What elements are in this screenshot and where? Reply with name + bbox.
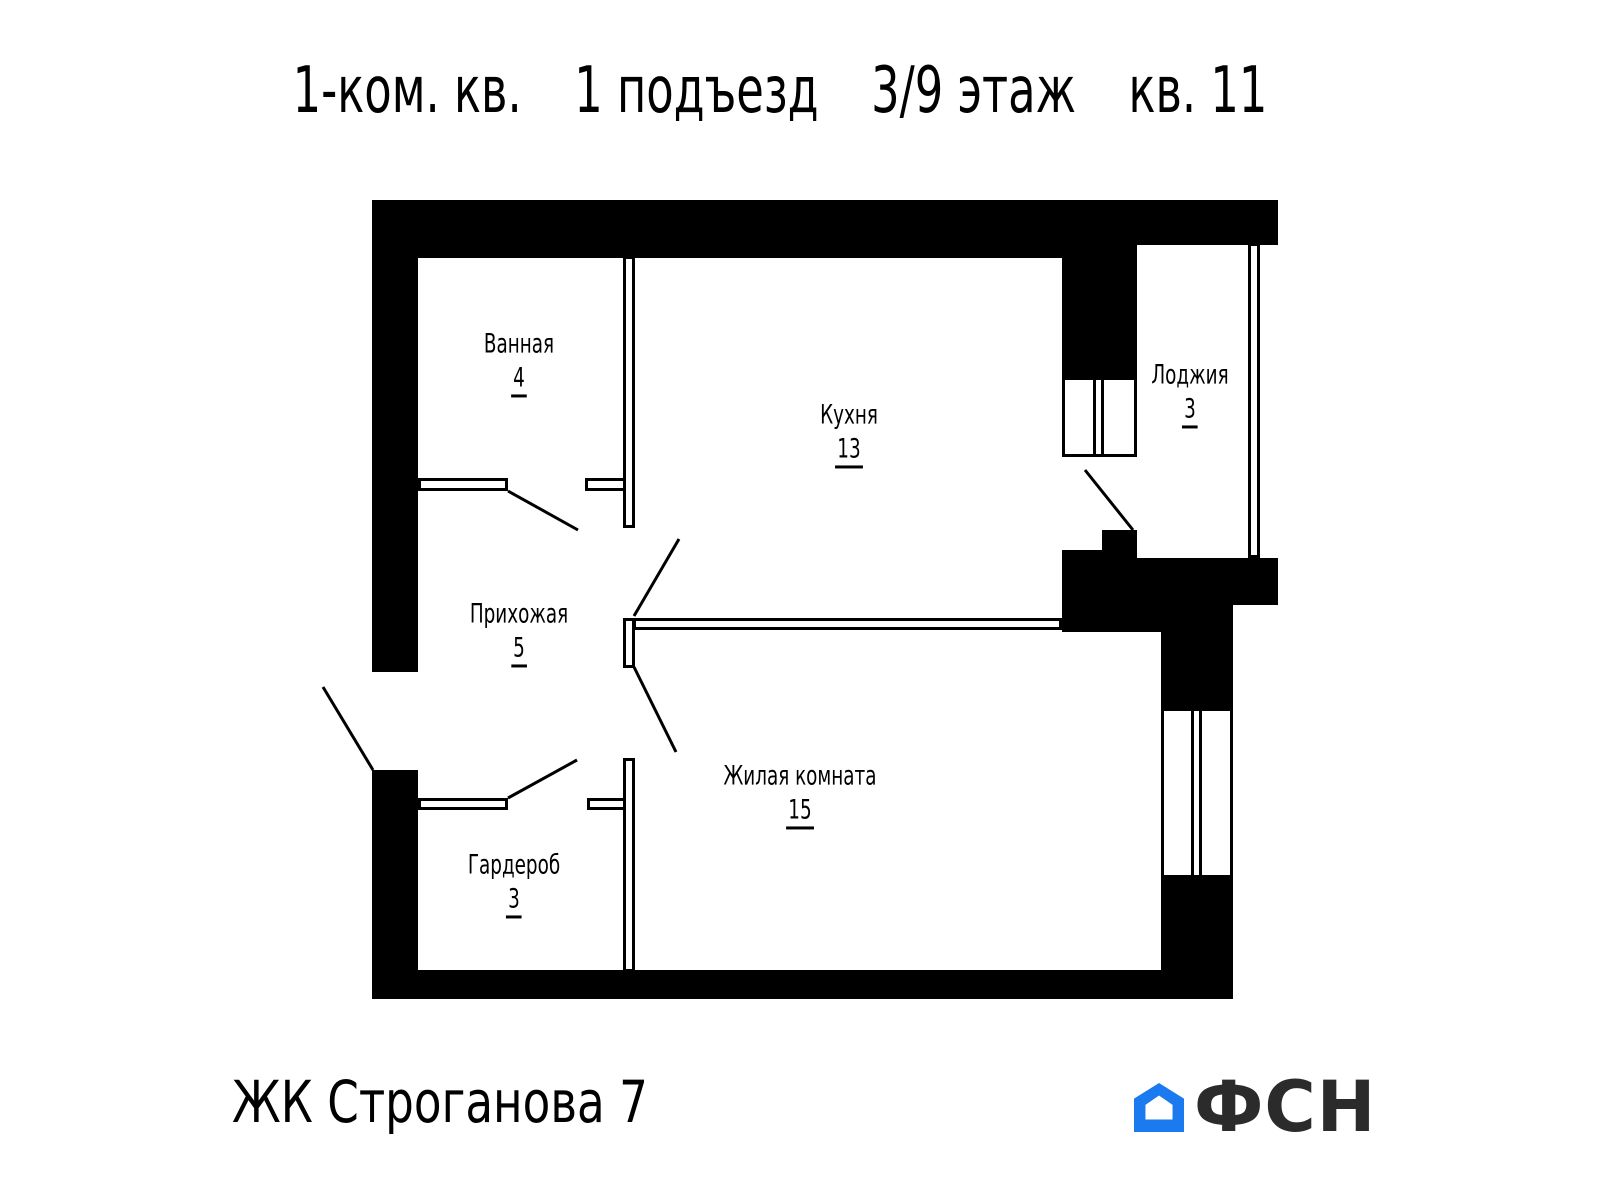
- title-apartment-type: 1-ком. кв.: [293, 56, 522, 126]
- room-label-wardrobe: Гардероб 3: [468, 849, 560, 918]
- room-label-hallway: Прихожая 5: [470, 598, 568, 667]
- room-name-hallway: Прихожая: [470, 598, 568, 629]
- partition-bathroom-bottom: [418, 478, 508, 491]
- room-area-loggia: 3: [1182, 394, 1198, 429]
- wall-shaft-column: [1062, 245, 1137, 377]
- developer-logo: ФСН: [1134, 1072, 1376, 1142]
- partition-bathroom-bottom-tee: [585, 478, 626, 491]
- partition-wardrobe-top-tee: [587, 798, 626, 810]
- room-label-loggia: Лоджия 3: [1151, 359, 1228, 428]
- window-kitchen-loggia-divider: [1093, 380, 1104, 454]
- room-area-bathroom: 4: [511, 363, 527, 398]
- wall-top-loggia: [1062, 200, 1278, 245]
- wall-loggia-band-right: [1233, 558, 1278, 605]
- partition-livingroom-top: [633, 618, 1062, 630]
- room-area-hallway: 5: [511, 633, 527, 668]
- page-title: 1-ком. кв. 1 подъезд 3/9 этаж кв. 11: [220, 56, 1340, 126]
- logo-text: ФСН: [1194, 1072, 1376, 1142]
- room-label-livingroom: Жилая комната 15: [724, 760, 877, 829]
- room-area-wardrobe: 3: [506, 884, 522, 919]
- room-area-livingroom: 15: [786, 795, 813, 830]
- kitchen-door-swing: [634, 539, 679, 616]
- room-name-bathroom: Ванная: [484, 328, 554, 359]
- title-entrance: 1 подъезд: [574, 56, 818, 126]
- room-label-kitchen: Кухня 13: [820, 399, 878, 468]
- room-area-kitchen: 13: [835, 434, 862, 469]
- wall-bottom: [372, 970, 1233, 999]
- wall-loggia-band-mid: [1137, 558, 1233, 632]
- wall-right-pillar-upper: [1161, 632, 1233, 708]
- title-floor: 3/9 этаж: [871, 56, 1076, 126]
- title-apartment-number: кв. 11: [1128, 56, 1267, 126]
- wall-top-main: [372, 200, 1062, 258]
- partition-loggia-right: [1248, 243, 1260, 558]
- window-living-room-divider: [1191, 711, 1202, 875]
- livingroom-door-swing: [634, 667, 676, 752]
- balcony-door-swing: [1085, 470, 1133, 530]
- room-label-bathroom: Ванная 4: [484, 328, 554, 397]
- partition-wardrobe-top: [418, 798, 508, 810]
- wall-loggia-band-left: [1062, 550, 1137, 632]
- wardrobe-door-swing: [508, 760, 577, 798]
- door-swing-lines: [0, 0, 1600, 1200]
- room-name-kitchen: Кухня: [820, 399, 878, 430]
- room-name-livingroom: Жилая комната: [724, 760, 877, 791]
- wall-left-upper: [372, 258, 418, 672]
- wall-balcony-hinge-block: [1102, 530, 1137, 552]
- room-name-wardrobe: Гардероб: [468, 849, 560, 880]
- wall-left-lower: [372, 770, 418, 999]
- bathroom-door-swing: [508, 491, 578, 530]
- room-name-loggia: Лоджия: [1151, 359, 1228, 390]
- window-kitchen-loggia: [1062, 377, 1137, 457]
- entrance-door-swing: [323, 687, 373, 770]
- house-icon: [1134, 1083, 1184, 1132]
- window-living-room: [1161, 708, 1233, 878]
- project-name: ЖК Строганова 7: [232, 1068, 648, 1136]
- partition-wardrobe-livingroom: [623, 758, 635, 972]
- floor-plan-canvas: 1-ком. кв. 1 подъезд 3/9 этаж кв. 11: [0, 0, 1600, 1200]
- wall-right-pillar-lower: [1161, 878, 1233, 999]
